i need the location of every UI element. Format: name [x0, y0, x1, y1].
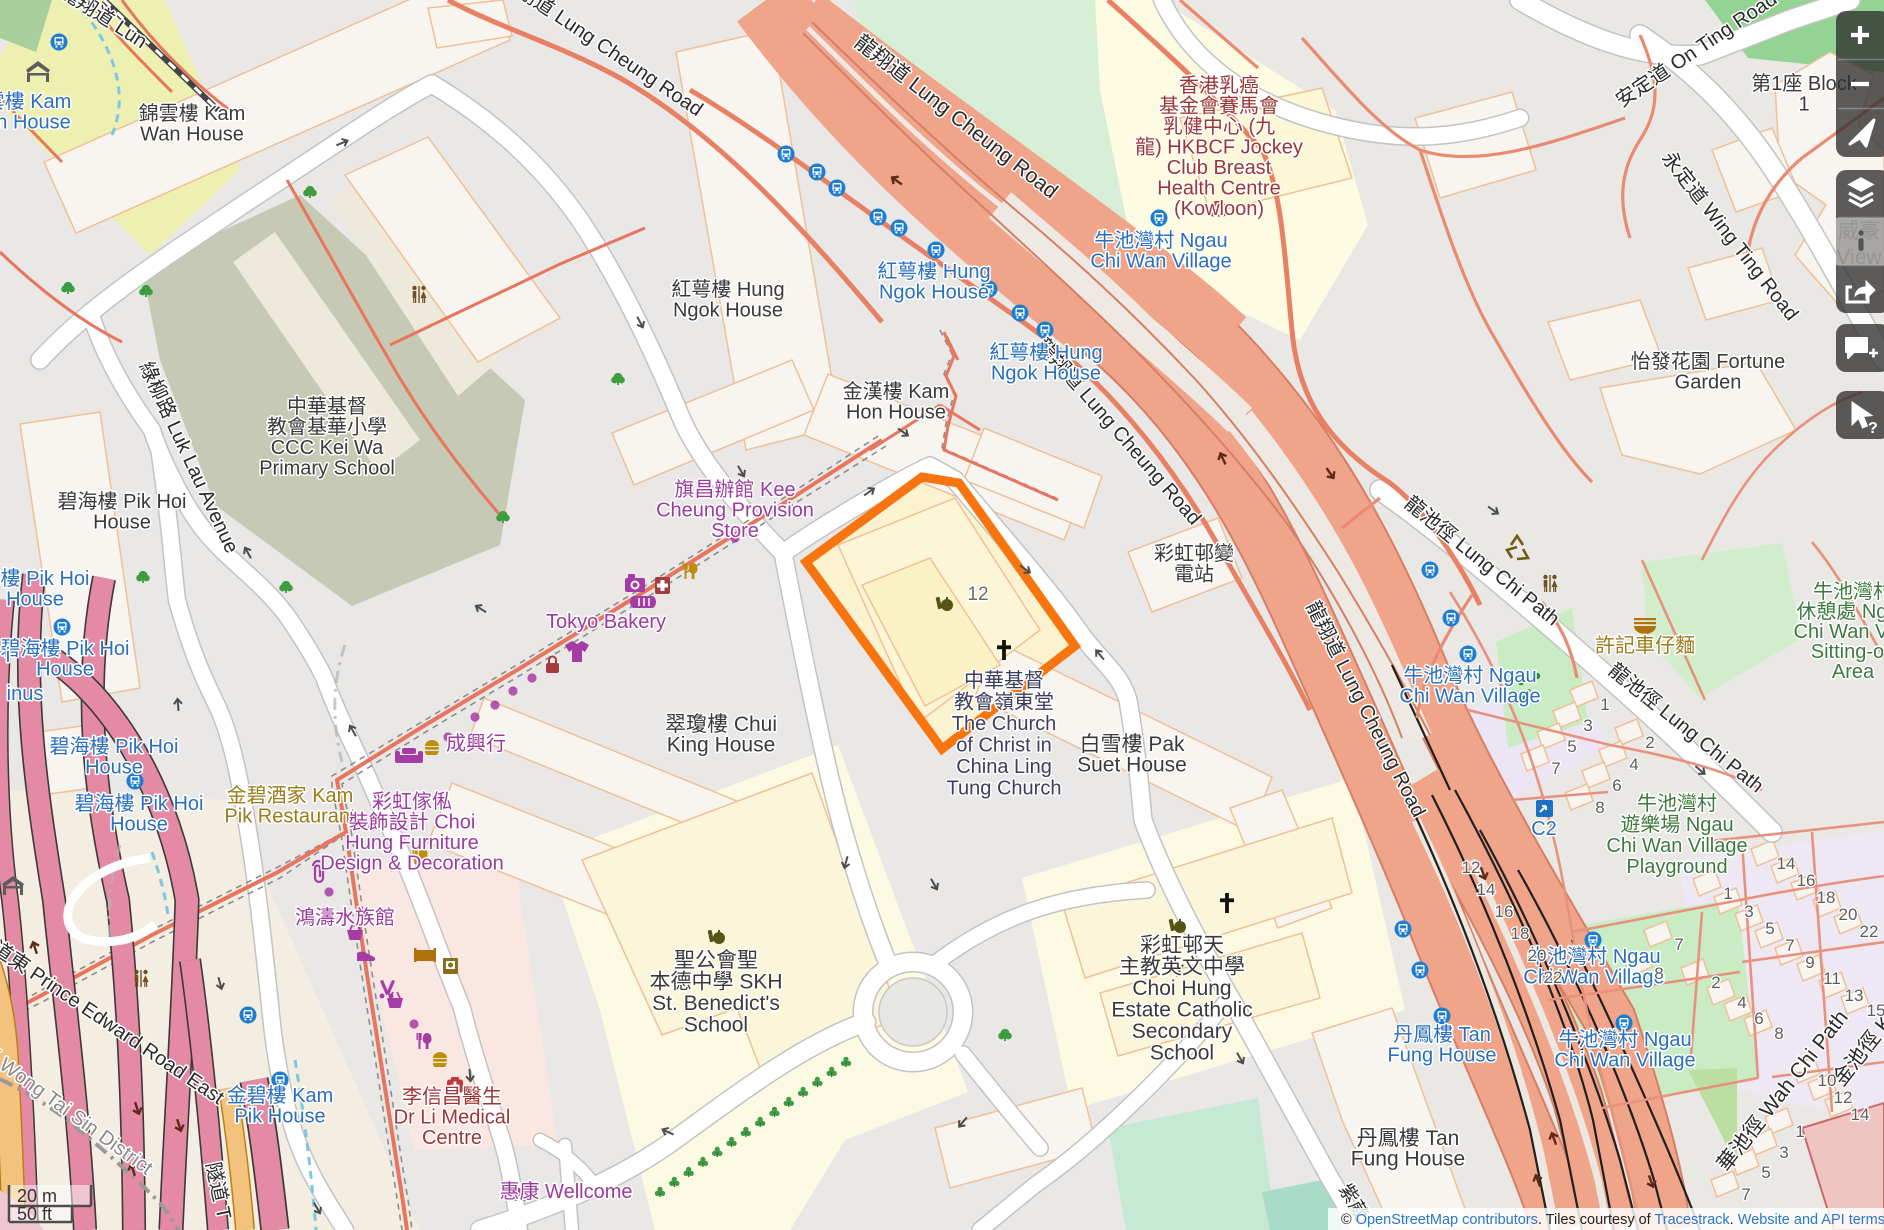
svg-text:50 ft: 50 ft: [17, 1204, 52, 1224]
svg-text:牛池灣村 Ngau: 牛池灣村 Ngau: [1094, 229, 1227, 252]
svg-text:House: House: [110, 814, 168, 836]
svg-text:20 m: 20 m: [17, 1186, 57, 1206]
svg-text:9: 9: [1805, 953, 1814, 972]
svg-text:20: 20: [1528, 946, 1547, 965]
svg-text:碧海樓 Pik Hoi: 碧海樓 Pik Hoi: [75, 792, 204, 815]
svg-text:Playground: Playground: [1626, 856, 1727, 878]
svg-text:School: School: [1150, 1042, 1214, 1065]
svg-text:7: 7: [1741, 1185, 1750, 1204]
svg-text:inus: inus: [7, 683, 44, 705]
svg-text:教會嶺東堂: 教會嶺東堂: [954, 691, 1054, 714]
svg-text:8: 8: [1654, 964, 1663, 983]
svg-text:© OpenStreetMap contributors.: © OpenStreetMap contributors. Tiles cour…: [1341, 1212, 1884, 1228]
svg-text:牛池灣村: 牛池灣村: [1637, 792, 1717, 815]
svg-text:Tung Church: Tung Church: [947, 778, 1062, 800]
svg-text:16: 16: [1797, 871, 1816, 890]
svg-text:Secondary: Secondary: [1132, 1020, 1233, 1043]
svg-text:Pik Restaurant: Pik Restaurant: [224, 806, 356, 828]
svg-text:14: 14: [1851, 1105, 1870, 1124]
svg-text:碧海樓 Pik Hoi: 碧海樓 Pik Hoi: [1, 637, 130, 660]
svg-text:Hon House: Hon House: [846, 402, 946, 424]
svg-text:18: 18: [1817, 888, 1836, 907]
svg-text:休憩處 Ngau: 休憩處 Ngau: [1796, 600, 1884, 623]
svg-text:8: 8: [1774, 1024, 1783, 1043]
svg-text:7: 7: [1551, 759, 1560, 778]
svg-text:碧海樓 Pik Hoi: 碧海樓 Pik Hoi: [58, 490, 187, 513]
svg-text:金碧樓 Kam: 金碧樓 Kam: [227, 1084, 334, 1107]
svg-text:6: 6: [1612, 776, 1621, 795]
svg-text:14: 14: [1777, 854, 1796, 873]
svg-text:St. Benedict's: St. Benedict's: [652, 992, 780, 1015]
svg-text:4: 4: [1629, 755, 1638, 774]
svg-text:Cheung Provision: Cheung Provision: [656, 500, 814, 522]
svg-text:成興行: 成興行: [446, 732, 506, 755]
svg-text:丹鳳樓 Tan: 丹鳳樓 Tan: [1393, 1023, 1491, 1046]
svg-text:18: 18: [1511, 924, 1530, 943]
svg-text:基金會賽馬會: 基金會賽馬會: [1159, 95, 1279, 118]
svg-text:Suet House: Suet House: [1077, 754, 1187, 777]
svg-text:Wan House: Wan House: [140, 124, 244, 146]
svg-text:12: 12: [967, 584, 988, 605]
svg-text:6: 6: [1754, 1009, 1763, 1028]
svg-text:(Kowloon): (Kowloon): [1174, 198, 1264, 220]
svg-text:牛池灣村 Ngau: 牛池灣村 Ngau: [1527, 945, 1660, 968]
svg-text:Chi Wan Village: Chi Wan Village: [1399, 686, 1540, 708]
svg-text:Chi Wan Village: Chi Wan Village: [1606, 835, 1747, 857]
svg-text:主教英文中學: 主教英文中學: [1119, 956, 1245, 979]
svg-text:惠康 Wellcome: 惠康 Wellcome: [500, 1180, 633, 1203]
svg-text:Ngok House: Ngok House: [879, 282, 989, 304]
svg-text:Sitting-ou: Sitting-ou: [1811, 641, 1884, 663]
svg-text:13: 13: [1845, 986, 1864, 1005]
svg-text:20: 20: [1839, 905, 1858, 924]
svg-text:乳健中心 (九: 乳健中心 (九: [1163, 115, 1275, 138]
svg-text:4: 4: [1737, 993, 1746, 1012]
svg-text:5: 5: [1765, 919, 1774, 938]
svg-text:Chi Wan Villa: Chi Wan Villa: [1794, 621, 1884, 643]
svg-text:Dr Li Medical: Dr Li Medical: [394, 1107, 511, 1129]
svg-text:22: 22: [1860, 922, 1879, 941]
svg-text:House: House: [36, 659, 94, 681]
svg-text:14: 14: [1477, 880, 1496, 899]
svg-text:?: ?: [1868, 420, 1878, 437]
svg-text:an House: an House: [0, 112, 71, 134]
svg-text:裝飾設計 Choi: 裝飾設計 Choi: [349, 811, 476, 834]
svg-text:1: 1: [1795, 1122, 1804, 1141]
svg-text:China Ling: China Ling: [956, 756, 1052, 778]
svg-text:Estate Catholic: Estate Catholic: [1111, 999, 1252, 1022]
svg-text:海樓 Pik Hoi: 海樓 Pik Hoi: [0, 567, 89, 590]
svg-text:金碧酒家 Kam: 金碧酒家 Kam: [227, 784, 354, 807]
svg-text:電站: 電站: [1174, 563, 1214, 586]
svg-text:教會基華小學: 教會基華小學: [267, 416, 387, 439]
svg-text:2: 2: [1711, 973, 1720, 992]
svg-text:3: 3: [1744, 902, 1753, 921]
svg-text:7: 7: [1674, 935, 1683, 954]
svg-text:Tokyo Bakery: Tokyo Bakery: [546, 611, 666, 633]
svg-text:Area: Area: [1832, 661, 1875, 683]
svg-text:Fung House: Fung House: [1351, 1148, 1465, 1171]
svg-text:King House: King House: [667, 734, 776, 757]
svg-text:彩虹傢俬: 彩虹傢俬: [372, 790, 452, 813]
svg-text:Club Breast: Club Breast: [1167, 157, 1272, 179]
svg-text:怡發花園 Fortune: 怡發花園 Fortune: [1631, 350, 1785, 373]
svg-text:7: 7: [1785, 936, 1794, 955]
svg-text:CCC Kei Wa: CCC Kei Wa: [271, 437, 384, 459]
svg-text:龍) HKBCF Jockey: 龍) HKBCF Jockey: [1135, 136, 1303, 159]
svg-text:彩虹邨天: 彩虹邨天: [1140, 934, 1224, 957]
svg-text:1: 1: [1798, 94, 1809, 116]
svg-text:22: 22: [1544, 968, 1563, 987]
svg-text:3: 3: [1779, 1143, 1788, 1162]
svg-text:Health Centre: Health Centre: [1157, 178, 1280, 200]
svg-text:鴻濤水族館: 鴻濤水族館: [295, 906, 395, 929]
svg-text:House: House: [85, 757, 143, 779]
svg-text:碧海樓 Pik Hoi: 碧海樓 Pik Hoi: [50, 735, 179, 758]
svg-text:中華基督: 中華基督: [287, 395, 367, 418]
svg-text:Garden: Garden: [1675, 372, 1742, 394]
svg-text:彩虹邨變: 彩虹邨變: [1154, 542, 1234, 565]
svg-text:1: 1: [1723, 884, 1732, 903]
svg-text:Store: Store: [711, 520, 759, 542]
svg-text:15: 15: [1867, 1001, 1884, 1020]
svg-text:紅萼樓 Hung: 紅萼樓 Hung: [671, 278, 784, 301]
svg-text:金漢樓 Kam: 金漢樓 Kam: [843, 380, 950, 403]
svg-text:5: 5: [1567, 737, 1576, 756]
svg-text:牛池灣村 Ngau: 牛池灣村 Ngau: [1558, 1028, 1691, 1051]
svg-text:遊樂場 Ngau: 遊樂場 Ngau: [1620, 813, 1733, 836]
svg-text:Hung Furniture: Hung Furniture: [345, 832, 478, 854]
svg-text:11: 11: [1823, 969, 1841, 988]
svg-text:House: House: [93, 512, 151, 534]
svg-text:Fung House: Fung House: [1388, 1045, 1497, 1067]
svg-text:牛池灣村: 牛池灣村: [1813, 580, 1884, 603]
svg-text:許記車仔麵: 許記車仔麵: [1595, 634, 1695, 657]
svg-text:1: 1: [1600, 695, 1609, 714]
svg-text:聖公會聖: 聖公會聖: [674, 949, 758, 972]
svg-text:紅萼樓 Hung: 紅萼樓 Hung: [989, 341, 1102, 364]
svg-text:Chi Wan Village: Chi Wan Village: [1554, 1050, 1695, 1072]
svg-text:of Christ in: of Christ in: [956, 735, 1052, 757]
svg-text:2: 2: [1645, 733, 1654, 752]
svg-text:中華基督: 中華基督: [964, 669, 1044, 692]
svg-text:牛池灣村 Ngau: 牛池灣村 Ngau: [1403, 664, 1536, 687]
svg-text:Pik House: Pik House: [234, 1106, 325, 1128]
svg-text:5: 5: [1761, 1163, 1770, 1182]
svg-text:Primary School: Primary School: [259, 458, 395, 480]
svg-text:旗昌辦館 Kee: 旗昌辦館 Kee: [674, 478, 795, 501]
svg-text:8: 8: [1595, 798, 1604, 817]
svg-text:16: 16: [1495, 902, 1514, 921]
svg-text:12: 12: [1462, 858, 1481, 877]
svg-text:香港乳癌: 香港乳癌: [1179, 74, 1259, 97]
svg-text:Design & Decoration: Design & Decoration: [320, 853, 503, 875]
svg-text:雲樓 Kam: 雲樓 Kam: [0, 90, 71, 113]
svg-text:The Church: The Church: [952, 713, 1057, 735]
svg-text:School: School: [684, 1014, 748, 1037]
svg-text:Centre: Centre: [422, 1127, 482, 1149]
svg-text:Choi Hung: Choi Hung: [1132, 977, 1231, 1000]
svg-text:House: House: [6, 589, 64, 611]
svg-text:Chi Wan Village: Chi Wan Village: [1090, 251, 1231, 273]
svg-text:李信昌醫生: 李信昌醫生: [402, 1085, 502, 1108]
svg-text:本德中學 SKH: 本德中學 SKH: [649, 971, 782, 994]
svg-text:錦雲樓 Kam: 錦雲樓 Kam: [139, 102, 246, 125]
svg-text:Ngok House: Ngok House: [673, 300, 783, 322]
svg-text:紅萼樓 Hung: 紅萼樓 Hung: [877, 260, 990, 283]
svg-text:Ngok House: Ngok House: [991, 363, 1101, 385]
svg-text:i: i: [6, 645, 10, 667]
svg-text:3: 3: [1583, 716, 1592, 735]
svg-text:C2: C2: [1531, 818, 1557, 840]
